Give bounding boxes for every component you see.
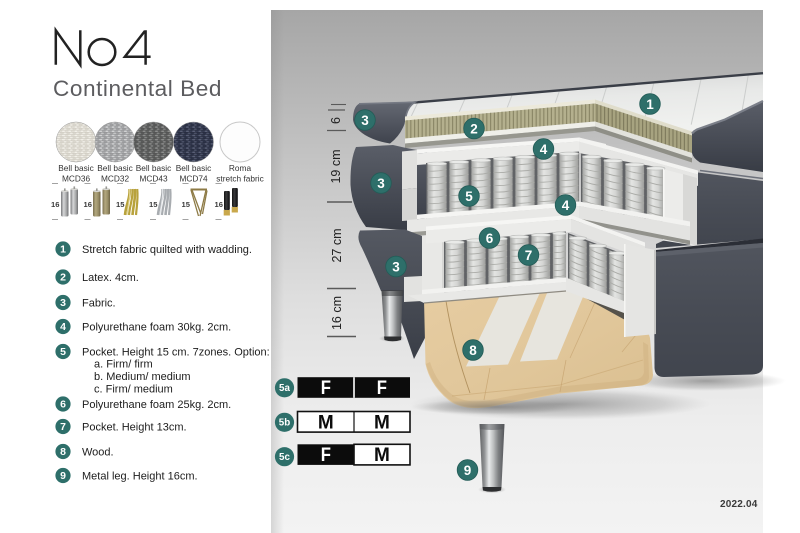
svg-text:a. Firm/ firm: a. Firm/ firm: [94, 359, 153, 371]
svg-text:6: 6: [486, 231, 494, 246]
svg-text:2022.04: 2022.04: [720, 499, 758, 510]
svg-text:MCD43: MCD43: [139, 174, 168, 184]
svg-text:Fabric.: Fabric.: [82, 298, 116, 310]
svg-text:3: 3: [377, 176, 385, 191]
svg-text:Wood.: Wood.: [82, 447, 114, 459]
svg-text:9: 9: [60, 470, 66, 482]
svg-text:4: 4: [540, 142, 548, 157]
svg-text:1: 1: [60, 244, 66, 256]
svg-text:Pocket. Height 13cm.: Pocket. Height 13cm.: [82, 422, 187, 434]
svg-text:27 cm: 27 cm: [330, 228, 344, 262]
svg-text:19 cm: 19 cm: [329, 149, 343, 183]
svg-text:7: 7: [60, 421, 66, 433]
svg-text:b. Medium/ medium: b. Medium/ medium: [94, 371, 191, 383]
svg-text:Metal leg. Height 16cm.: Metal leg. Height 16cm.: [82, 471, 198, 483]
svg-text:2: 2: [470, 121, 478, 136]
svg-text:7: 7: [525, 248, 533, 263]
svg-text:5a: 5a: [279, 383, 290, 394]
svg-text:Stretch fabric quilted with wa: Stretch fabric quilted with wadding.: [82, 244, 252, 256]
svg-text:F: F: [321, 377, 331, 398]
svg-text:M: M: [318, 412, 334, 433]
svg-text:Roma: Roma: [229, 163, 252, 173]
svg-text:Bell basic: Bell basic: [97, 163, 133, 173]
svg-text:15: 15: [182, 200, 191, 209]
svg-text:MCD74: MCD74: [179, 174, 208, 184]
svg-text:M: M: [374, 445, 390, 466]
svg-text:3: 3: [60, 297, 66, 309]
svg-text:MCD36: MCD36: [62, 174, 91, 184]
svg-text:3: 3: [392, 259, 400, 274]
svg-text:16: 16: [51, 200, 59, 209]
svg-text:16: 16: [215, 200, 223, 209]
svg-text:6: 6: [60, 399, 66, 411]
svg-text:5c: 5c: [279, 452, 290, 463]
svg-text:15: 15: [116, 200, 125, 209]
svg-text:Polyurethane foam 25kg. 2cm.: Polyurethane foam 25kg. 2cm.: [82, 399, 231, 411]
svg-text:16: 16: [84, 200, 92, 209]
svg-text:4: 4: [562, 198, 570, 213]
svg-text:Continental Bed: Continental Bed: [53, 76, 222, 101]
svg-text:1: 1: [646, 97, 654, 112]
svg-text:Pocket. Height 15 cm. 7zones.: Pocket. Height 15 cm. 7zones. Option:: [82, 347, 270, 359]
svg-text:8: 8: [60, 446, 66, 458]
svg-text:5b: 5b: [279, 418, 290, 429]
svg-text:Bell basic: Bell basic: [58, 163, 94, 173]
svg-text:stretch fabric: stretch fabric: [216, 174, 264, 184]
svg-text:3: 3: [361, 113, 369, 128]
svg-text:16 cm: 16 cm: [330, 296, 344, 330]
svg-text:8: 8: [469, 343, 477, 358]
svg-text:9: 9: [464, 463, 472, 478]
svg-text:15: 15: [149, 200, 158, 209]
svg-text:F: F: [321, 444, 331, 465]
svg-text:F: F: [377, 377, 387, 398]
svg-text:Bell basic: Bell basic: [176, 163, 212, 173]
svg-text:5: 5: [60, 346, 66, 358]
svg-text:Latex. 4cm.: Latex. 4cm.: [82, 272, 139, 284]
svg-text:Bell basic: Bell basic: [136, 163, 172, 173]
svg-text:6: 6: [329, 117, 343, 124]
svg-text:c. Firm/ medium: c. Firm/ medium: [94, 384, 173, 396]
svg-text:4: 4: [60, 321, 66, 333]
svg-text:5: 5: [465, 189, 473, 204]
svg-text:2: 2: [60, 272, 66, 284]
svg-text:MCD32: MCD32: [101, 174, 130, 184]
svg-text:Polyurethane foam 30kg. 2cm.: Polyurethane foam 30kg. 2cm.: [82, 322, 231, 334]
svg-text:M: M: [374, 412, 390, 433]
